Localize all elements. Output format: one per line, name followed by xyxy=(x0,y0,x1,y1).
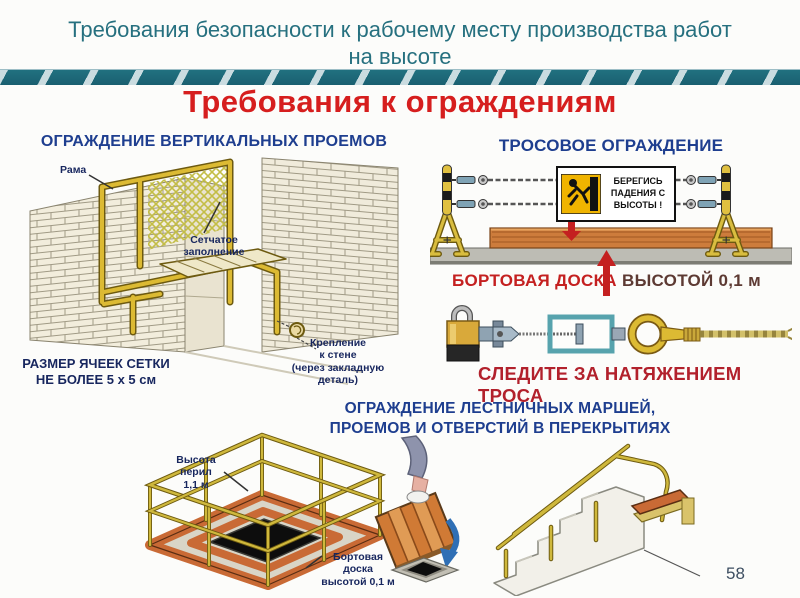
turnbuckle-frame xyxy=(550,317,625,351)
stairs xyxy=(494,446,700,596)
toe-board-label: Бортовая доска высотой 0,1 м xyxy=(318,551,398,588)
frame-label: Рама xyxy=(60,164,86,176)
toe-board-caption: БОРТОВАЯ ДОСКА xyxy=(452,271,617,291)
clevis-fitting xyxy=(479,321,519,347)
mesh-size-label: РАЗМЕР ЯЧЕЕК СЕТКИ НЕ БОЛЕЕ 5 х 5 см xyxy=(18,356,174,387)
padlock-icon xyxy=(447,308,479,361)
vertical-openings-title: ОГРАЖДЕНИЕ ВЕРТИКАЛЬНЫХ ПРОЕМОВ xyxy=(28,133,400,151)
worker-leg xyxy=(402,436,429,503)
page-number: 58 xyxy=(726,564,745,584)
toe-board-height-caption: ВЫСОТОЙ 0,1 м xyxy=(622,271,761,291)
wall-mount-label: Крепление к стене (через закладную детал… xyxy=(288,337,388,387)
warning-sign-text: БЕРЕГИСЬ ПАДЕНИЯ С ВЫСОТЫ ! xyxy=(605,176,671,211)
falling-person-icon xyxy=(561,174,601,214)
slide-title: Требования безопасности к рабочему месту… xyxy=(0,17,800,71)
cable-tension-illustration xyxy=(432,303,792,363)
cable-fence-title: ТРОСОВОЕ ОГРАЖДЕНИЕ xyxy=(430,136,792,156)
rail-height-label: Высота перил 1,1 м xyxy=(170,454,222,491)
ribbon-divider xyxy=(0,69,800,85)
page-title: Требования к ограждениям xyxy=(0,84,800,120)
slide-title-line1: Требования безопасности к рабочему месту… xyxy=(0,17,800,44)
slide: Требования безопасности к рабочему месту… xyxy=(0,0,800,598)
rope-splice xyxy=(661,327,792,341)
cable-ring xyxy=(632,318,664,350)
mesh-label: Сетчатое заполнение xyxy=(168,234,260,259)
rail-label-pointer xyxy=(224,472,248,491)
arrow-up-icon xyxy=(597,250,616,298)
slide-title-line2: на высоте xyxy=(0,44,800,71)
warning-sign: БЕРЕГИСЬ ПАДЕНИЯ С ВЫСОТЫ ! xyxy=(556,166,676,222)
